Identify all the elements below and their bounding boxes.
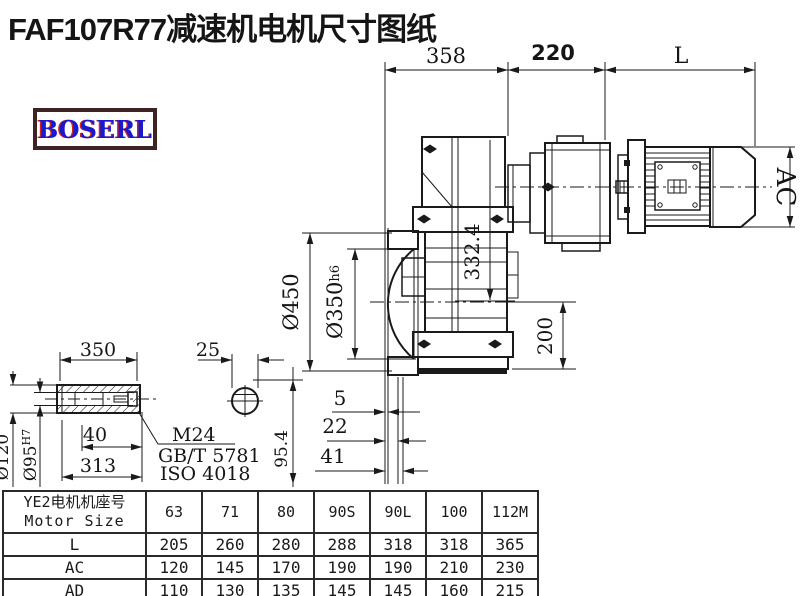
standard-iso-label: ISO 4018 (160, 463, 251, 485)
dim-954-label: 95.4 (272, 430, 292, 468)
dim-220-label: 220 (531, 41, 575, 65)
dim-40-label: 40 (83, 424, 107, 446)
cell: 210 (426, 556, 482, 579)
cell: 170 (258, 556, 314, 579)
cell: 215 (482, 579, 538, 596)
col-header: 80 (258, 491, 314, 533)
boserl-logo: BOSERL (33, 108, 157, 150)
table-row-AC: AC 120 145 170 190 190 210 230 (3, 556, 538, 579)
dim-dia350-label: Ø350h6 (323, 265, 347, 339)
dim-5-label: 5 (334, 386, 347, 410)
dim-332-label: 332.4 (460, 223, 484, 280)
cell: 205 (146, 533, 202, 556)
cell: 318 (370, 533, 426, 556)
boserl-logo-text: BOSERL (38, 115, 152, 144)
gearbox-outline (302, 62, 795, 484)
table-header-cn: YE2电机机座号 (4, 493, 145, 512)
cell: 280 (258, 533, 314, 556)
cell: 145 (314, 579, 370, 596)
table-header-row: YE2电机机座号 Motor Size 63 71 80 90S 90L 100… (3, 491, 538, 533)
col-header: 90L (370, 491, 426, 533)
dim-358-label: 358 (426, 44, 466, 68)
cell: 120 (146, 556, 202, 579)
cell: 260 (202, 533, 258, 556)
cell: 288 (314, 533, 370, 556)
table-row-L: L 205 260 280 288 318 318 365 (3, 533, 538, 556)
cell: 318 (426, 533, 482, 556)
drawing-page: FAF107R77减速机电机尺寸图纸 (0, 0, 800, 596)
dim-313-label: 313 (80, 455, 116, 477)
row-label: AC (3, 556, 146, 579)
cell: 135 (258, 579, 314, 596)
table-row-AD: AD 110 130 135 145 145 160 215 (3, 579, 538, 596)
cell: 130 (202, 579, 258, 596)
dim-350-label: 350 (80, 339, 116, 361)
cell: 160 (426, 579, 482, 596)
col-header: 63 (146, 491, 202, 533)
dim-200-label: 200 (533, 317, 557, 355)
dim-dia450-label: Ø450 (279, 273, 303, 330)
cell: 110 (146, 579, 202, 596)
col-header: 71 (202, 491, 258, 533)
key-section (227, 385, 263, 417)
adapter-stage (508, 136, 610, 251)
extension-lines (385, 62, 795, 484)
motor-size-table: YE2电机机座号 Motor Size 63 71 80 90S 90L 100… (2, 490, 539, 596)
cell: 145 (202, 556, 258, 579)
dim-41-label: 41 (320, 444, 345, 468)
col-header: 112M (482, 491, 538, 533)
table-header-en: Motor Size (4, 512, 145, 531)
cell: 365 (482, 533, 538, 556)
dim-25-label: 25 (196, 339, 220, 361)
row-label: AD (3, 579, 146, 596)
table-header-motor-size: YE2电机机座号 Motor Size (3, 491, 146, 533)
arrowheads (307, 67, 794, 475)
cell: 145 (370, 579, 426, 596)
thread-label: M24 (172, 424, 216, 446)
dim-22-label: 22 (322, 414, 347, 438)
row-label: L (3, 533, 146, 556)
dim-AC-label: AC (770, 167, 800, 207)
col-header: 90S (314, 491, 370, 533)
dim-L-label: L (674, 44, 689, 69)
cell: 190 (314, 556, 370, 579)
assembly-drawing: 358 220 L AC Ø450 Ø350h6 332.4 200 5 22 … (0, 0, 800, 490)
cell: 230 (482, 556, 538, 579)
dim-dia120-label: Ø120 (0, 434, 13, 480)
col-header: 100 (426, 491, 482, 533)
cell: 190 (370, 556, 426, 579)
dim-dia95-label: Ø95H7 (20, 429, 41, 481)
